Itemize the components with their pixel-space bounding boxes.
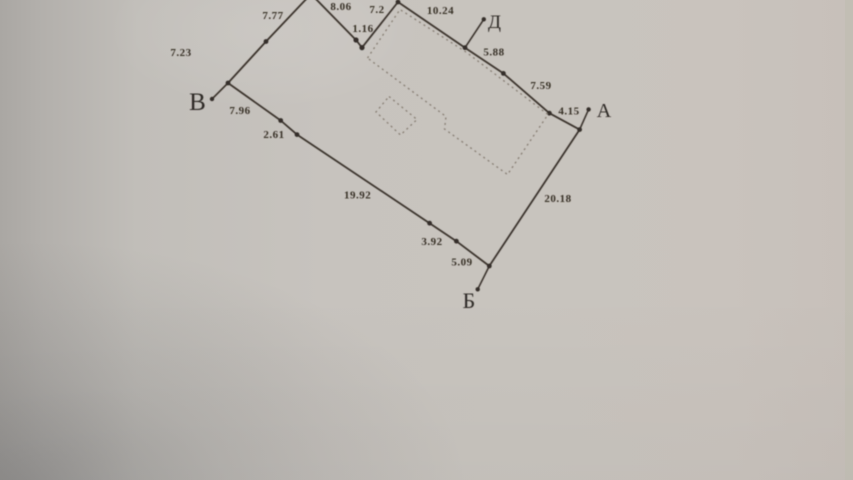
- svg-text:А: А: [597, 100, 612, 122]
- svg-text:7.77: 7.77: [262, 10, 283, 22]
- svg-text:4.15: 4.15: [558, 106, 579, 118]
- svg-text:5.09: 5.09: [451, 257, 472, 269]
- svg-text:10.24: 10.24: [427, 5, 454, 17]
- svg-text:В: В: [189, 89, 206, 116]
- svg-text:Б: Б: [463, 288, 476, 313]
- svg-text:20.18: 20.18: [544, 193, 571, 205]
- svg-text:19.92: 19.92: [344, 190, 371, 202]
- svg-text:3.92: 3.92: [421, 236, 442, 248]
- svg-text:Д: Д: [488, 12, 501, 33]
- svg-text:7.2: 7.2: [369, 4, 384, 16]
- svg-text:1.16: 1.16: [352, 23, 373, 35]
- svg-text:8.06: 8.06: [330, 1, 351, 13]
- svg-text:7.59: 7.59: [530, 80, 551, 92]
- svg-text:7.96: 7.96: [229, 105, 250, 117]
- svg-text:7.23: 7.23: [170, 47, 191, 59]
- svg-text:2.61: 2.61: [263, 129, 284, 141]
- svg-text:5.88: 5.88: [483, 47, 504, 59]
